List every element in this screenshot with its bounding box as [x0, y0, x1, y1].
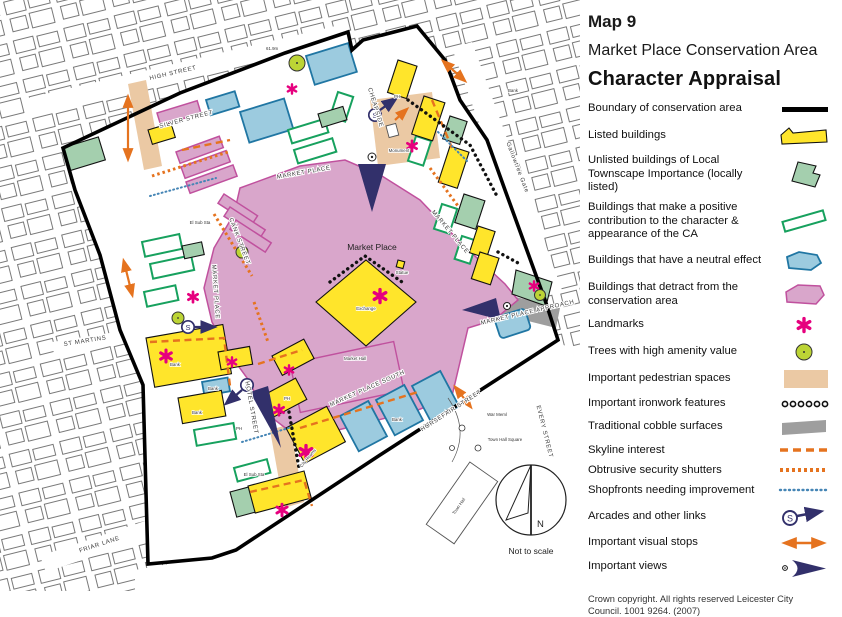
- legend-item-pedestrian: Important pedestrian spaces: [588, 368, 832, 390]
- visual-stop-arrow-icon: [772, 536, 832, 550]
- legend-item-unlisted: Unlisted buildings of Local Townscape Im…: [588, 154, 832, 195]
- cobble-surface-icon: [772, 417, 832, 437]
- label-not-to-scale: Not to scale: [509, 546, 554, 556]
- legend-item-listed: Listed buildings: [588, 124, 832, 148]
- label-statue: Statue: [396, 270, 409, 275]
- legend-item-boundary: Boundary of conservation area: [588, 101, 832, 117]
- conservation-map-svg: S S S: [0, 0, 580, 591]
- legend-item-trees: Trees with high amenity value: [588, 342, 832, 362]
- page-title: Character Appraisal: [588, 68, 832, 91]
- label-spot-height: 61.9m: [266, 46, 279, 51]
- copyright-note: Crown copyright. All rights reserved Lei…: [588, 593, 818, 617]
- label-town-hall-square: Town Hall Square: [488, 437, 523, 442]
- legend-item-arcades: Arcades and other links S: [588, 504, 832, 530]
- view-arrow-icon: [772, 557, 832, 577]
- pedestrian-space-icon: [772, 368, 832, 390]
- legend-item-shutters: Obtrusive security shutters: [588, 464, 832, 478]
- label-bank: Bank: [208, 386, 219, 391]
- legend-item-neutral: Buildings that have a neutral effect: [588, 248, 832, 274]
- boundary-line-icon: [772, 101, 832, 117]
- label-bank: Bank: [508, 88, 519, 93]
- ironwork-dots-icon: [772, 397, 832, 411]
- map-canvas: S S S: [0, 0, 580, 591]
- statue-marker: [396, 260, 405, 269]
- area-title: Market Place Conservation Area: [588, 42, 832, 60]
- label-exchange: Exchange: [356, 306, 376, 311]
- legend-item-visual-stops: Important visual stops: [588, 536, 832, 550]
- legend-item-shopfronts: Shopfronts needing improvement: [588, 484, 832, 498]
- label-monument: Monument: [389, 148, 411, 153]
- label-ph: PH: [394, 94, 400, 99]
- legend-item-skyline: Skyline interest: [588, 444, 832, 458]
- neutral-building-icon: [772, 248, 832, 274]
- shopfront-dots-icon: [772, 484, 832, 496]
- legend-panel: Map 9 Market Place Conservation Area Cha…: [580, 0, 842, 591]
- legend-item-landmarks: Landmarks: [588, 315, 832, 335]
- label-war-meml: War Meml: [487, 412, 507, 417]
- legend-item-views: Important views: [588, 557, 832, 577]
- label-bank: Bank: [170, 362, 181, 367]
- svg-text:S: S: [185, 323, 190, 332]
- compass-north-label: N: [537, 519, 544, 530]
- tree-icon: [772, 342, 832, 362]
- landmark-star-icon: [772, 315, 832, 335]
- label-market-hall: Market Hall: [344, 356, 366, 361]
- legend-item-cobble: Traditional cobble surfaces: [588, 417, 832, 437]
- label-bank: Bank: [192, 410, 203, 415]
- legend-item-ironwork: Important ironwork features: [588, 397, 832, 411]
- label-bank: Bank: [392, 417, 403, 422]
- legend-item-positive: Buildings that make a positive contribut…: [588, 201, 832, 242]
- label-el-sub-sta: El Sub Sta: [190, 220, 211, 225]
- label-market-place: Market Place: [347, 242, 397, 252]
- locally-listed-building-icon: [772, 158, 832, 190]
- positive-building-icon: [772, 206, 832, 236]
- listed-building-icon: [772, 124, 832, 148]
- map-number-title: Map 9: [588, 12, 832, 32]
- detracting-building-icon: [772, 281, 832, 309]
- skyline-dash-icon: [772, 444, 832, 456]
- label-el-sub-sta: El Sub Sta: [244, 472, 265, 477]
- shutter-dots-icon: [772, 464, 832, 476]
- label-ph: PH: [236, 426, 242, 431]
- label-ph: PH: [284, 396, 290, 401]
- legend-item-detract: Buildings that detract from the conserva…: [588, 281, 832, 309]
- arcade-link-icon: S: [772, 504, 832, 530]
- svg-text:S: S: [787, 513, 793, 523]
